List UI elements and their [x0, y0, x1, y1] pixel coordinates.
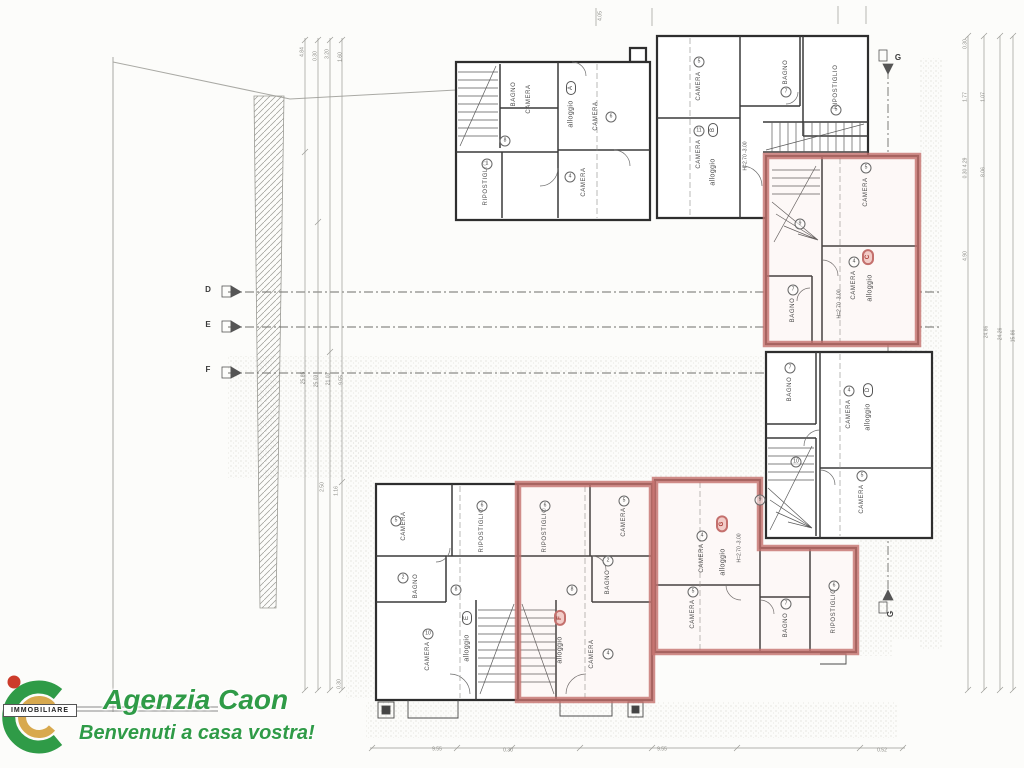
logo-banner: IMMOBILIARE	[3, 704, 77, 717]
dimension-label: 9.55	[340, 375, 345, 385]
dimension-label: 9.55	[432, 748, 442, 753]
room-number: 4	[697, 531, 708, 542]
dimension-label: 0.30	[503, 749, 513, 754]
room-label: RIPOSTIGLIO	[831, 589, 837, 634]
room-label: RIPOSTIGLIO	[542, 508, 548, 553]
room-number: 8	[451, 585, 462, 596]
room-number: 5	[688, 587, 699, 598]
dimension-label: 0.30	[338, 679, 343, 689]
room-label: CAMERA	[581, 167, 587, 196]
dimension-label: 1.77	[964, 92, 969, 102]
unit-label: alloggio	[865, 403, 872, 430]
agency-tagline: Benvenuti a casa vostra!	[79, 722, 315, 745]
unit-marker: A	[566, 81, 576, 95]
room-label: BAGNO	[790, 298, 796, 323]
agency-name: Agenzia Caon	[103, 684, 288, 716]
room-number: 5	[694, 57, 705, 68]
dimension-label: 8.06	[982, 167, 987, 177]
room-number: 6	[540, 501, 551, 512]
room-label: CAMERA	[696, 71, 702, 100]
room-number: 11	[694, 126, 705, 137]
dimension-label: 0.30	[314, 51, 319, 61]
room-number: 7	[781, 599, 792, 610]
section-marker: G	[895, 54, 901, 62]
existing-wall-hatch	[254, 96, 284, 608]
room-number: 7	[788, 285, 799, 296]
room-label: CAMERA	[696, 139, 702, 168]
room-number: 10	[423, 629, 434, 640]
dimension-label: 0.30 4.29	[964, 158, 969, 179]
room-label: RIPOSTIGLIO	[479, 508, 485, 553]
room-label: CAMERA	[425, 641, 431, 670]
unit-label: alloggio	[710, 158, 717, 185]
room-number: 4	[844, 386, 855, 397]
dimension-label: 15.86	[1012, 330, 1017, 343]
room-number: 1	[482, 159, 493, 170]
dimension-label: 4.05	[599, 11, 604, 21]
dimension-label: 3.20	[326, 49, 331, 59]
room-number: 8	[567, 585, 578, 596]
dimension-label: 1.60	[339, 52, 344, 62]
dimension-label: 21.03	[327, 373, 332, 386]
unit-marker: D	[863, 383, 873, 397]
unit-label: alloggio	[557, 636, 564, 663]
room-number: 9	[795, 219, 806, 230]
unit-label: alloggio	[568, 100, 575, 127]
room-number: 5	[857, 471, 868, 482]
room-number: 2	[398, 573, 409, 584]
room-label: CAMERA	[401, 511, 407, 540]
dimension-label: 24.86	[985, 326, 990, 339]
room-number: 5	[619, 496, 630, 507]
room-number: 5	[861, 163, 872, 174]
dimension-label: 0.30	[964, 39, 969, 49]
unit-marker-highlighted: C	[862, 249, 874, 265]
dimension-label: 25.85	[302, 372, 307, 385]
room-number: 6	[606, 112, 617, 123]
unit-marker: E	[462, 611, 472, 625]
room-label: BAGNO	[783, 613, 789, 638]
section-marker: F	[206, 366, 211, 374]
room-label: CAMERA	[846, 399, 852, 428]
dimension-label: 1.16	[335, 486, 340, 496]
section-marker: G	[887, 611, 895, 617]
room-number: 5	[391, 516, 402, 527]
room-label: CAMERA	[690, 599, 696, 628]
room-label: BAGNO	[413, 574, 419, 599]
dimension-label: 25.03	[315, 375, 320, 388]
room-number: 6	[829, 581, 840, 592]
dimension-label: 24.26	[999, 328, 1004, 341]
dimension-label: 1.07	[982, 92, 987, 102]
room-label: CAMERA	[851, 270, 857, 299]
room-number: 5	[831, 105, 842, 116]
unit-label: alloggio	[867, 274, 874, 301]
dimension-label: 9.55	[657, 748, 667, 753]
unit-label: alloggio	[720, 548, 727, 575]
room-label: CAMERA	[621, 507, 627, 536]
dimension-label: 2.50	[321, 482, 326, 492]
room-label: CAMERA	[863, 177, 869, 206]
unit-label: alloggio	[464, 634, 471, 661]
height-note: H=2.70 -3.00	[838, 289, 843, 318]
room-number: 7	[785, 363, 796, 374]
room-label: RIPOSTIGLIO	[833, 65, 839, 110]
room-label: CAMERA	[526, 84, 532, 113]
dimension-label: 4.84	[301, 47, 306, 57]
section-marker: E	[205, 321, 210, 329]
room-number: 10	[791, 457, 802, 468]
room-number: 7	[781, 87, 792, 98]
room-label: CAMERA	[859, 484, 865, 513]
floorplan-page: BAGNOCAMERARIPOSTIGLIOCAMERACAMERAallogg…	[0, 0, 1024, 768]
unit-marker: B	[708, 123, 718, 137]
height-note: H=2.70 -3.00	[738, 533, 743, 562]
room-label: BAGNO	[787, 377, 793, 402]
room-number: 9	[755, 495, 766, 506]
room-label: BAGNO	[605, 570, 611, 595]
room-number: 6	[477, 501, 488, 512]
unit-marker-highlighted: G	[716, 516, 728, 533]
room-label: CAMERA	[699, 543, 705, 572]
height-note: H=2.70 -3.00	[744, 141, 749, 170]
room-label: BAGNO	[783, 60, 789, 85]
section-marker: D	[205, 286, 211, 294]
unit-marker-highlighted: F	[554, 610, 566, 626]
room-number: 4	[565, 172, 576, 183]
room-label: CAMERA	[589, 639, 595, 668]
room-number: 8	[500, 136, 511, 147]
room-label: BAGNO	[511, 82, 517, 107]
room-label: CAMERA	[593, 101, 599, 130]
dimension-label: 0.52	[877, 749, 887, 754]
room-number: 4	[849, 257, 860, 268]
room-number: 4	[603, 649, 614, 660]
dimension-label: 4.90	[964, 251, 969, 261]
room-number: 2	[603, 556, 614, 567]
